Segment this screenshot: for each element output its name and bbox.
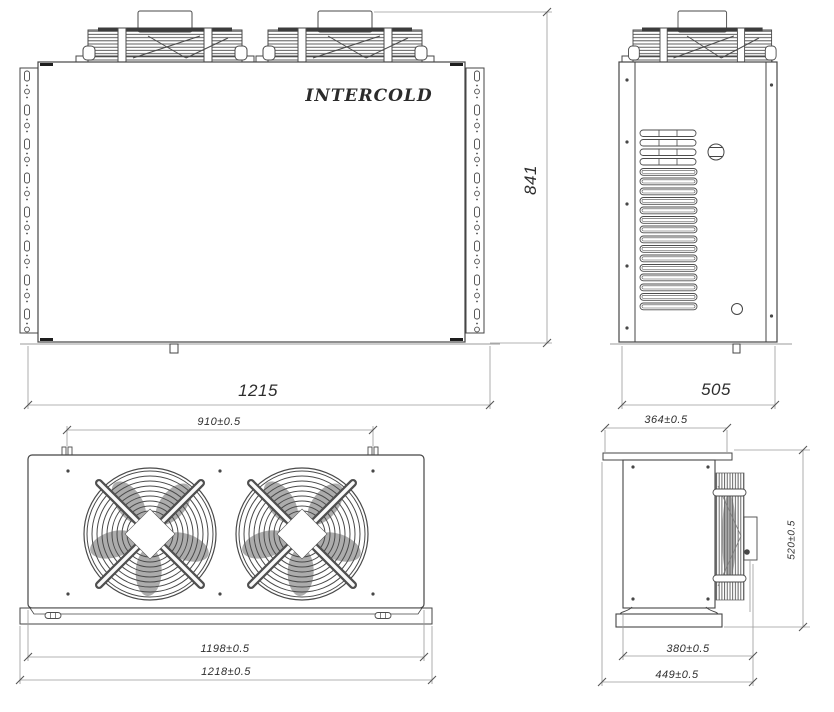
dim-label-front-height: 841 (521, 165, 541, 195)
top-plate (603, 453, 732, 460)
front-view (20, 11, 500, 353)
side-view (610, 11, 792, 353)
bottom-flange (20, 608, 432, 624)
section-body-panel (623, 460, 715, 608)
dim-label-top-depth: 364±0.5 (644, 414, 687, 426)
fan-assembly-1-profile-icon (83, 11, 247, 62)
fan-grille-1-icon (84, 468, 216, 600)
drain-fitting (170, 344, 178, 353)
flange-slot-left (45, 613, 61, 619)
fan-assembly-2-profile-icon (263, 11, 427, 62)
flange-slot-right (375, 613, 391, 619)
drain-fitting-side (733, 344, 740, 353)
right-mounting-strip (466, 68, 484, 333)
brand-logo: INTERCOLD (305, 86, 432, 106)
motor-box-dot (744, 549, 750, 555)
dim-top-depth-364 (601, 424, 731, 452)
fan-blade-edge (722, 494, 736, 578)
dim-label-body-depth: 380±0.5 (666, 643, 709, 655)
left-mounting-strip (20, 68, 38, 333)
plan-view (20, 447, 432, 624)
dim-label-section-height: 520±0.5 (787, 520, 798, 560)
drawing-svg (0, 0, 834, 712)
technical-drawing-canvas: INTERCOLD 1215 841 505 910±0.5 1198±0.5 … (0, 0, 834, 712)
mounting-tab-left (62, 447, 72, 455)
bottom-bracket (616, 614, 722, 627)
side-section-view (603, 453, 757, 627)
dim-label-front-width: 1215 (238, 381, 278, 401)
dim-label-body-width: 1198±0.5 (201, 643, 250, 655)
mounting-tab-right (368, 447, 378, 455)
grille-band-bottom (713, 575, 746, 582)
dim-label-overall-width: 1218±0.5 (201, 666, 251, 678)
dim-label-side-depth: 505 (701, 380, 731, 400)
fan-assembly-side-profile-icon (629, 11, 777, 62)
fan-grille-2-icon (236, 468, 368, 600)
dim-fan-pitch-910 (63, 426, 377, 446)
dim-side-depth-505 (618, 346, 779, 409)
dim-label-fan-pitch: 910±0.5 (197, 416, 240, 428)
dim-label-overall-depth: 449±0.5 (655, 669, 698, 681)
grille-band-top (713, 489, 746, 496)
